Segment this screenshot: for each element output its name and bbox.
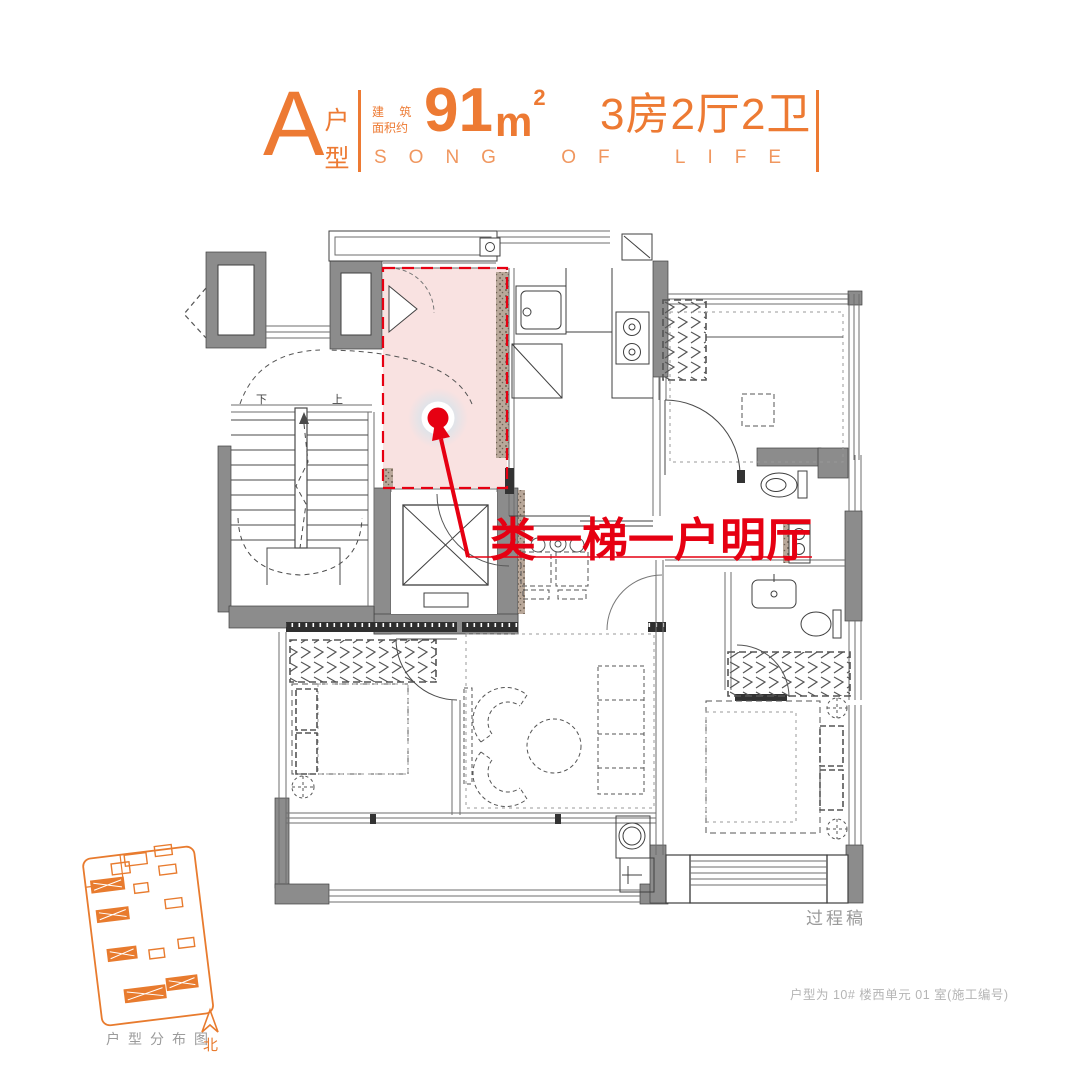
living-room: [464, 634, 654, 808]
site-buildings-outline: [110, 843, 196, 962]
stove-burners: [624, 319, 641, 361]
top-fixtures: [480, 234, 652, 260]
site-buildings-highlighted: [90, 869, 200, 1006]
site-map: 户型分布图 北: [82, 842, 218, 1054]
windows: [231, 231, 861, 902]
watermark-label: 过程稿: [806, 909, 866, 928]
bedroom-southwest: [290, 639, 457, 798]
footnote-label: 户型为 10# 楼西单元 01 室(施工编号): [790, 987, 1008, 1002]
floor-plan: 下 上: [0, 0, 1079, 1090]
page: { "colors": { "accent_orange": "#ED7A33"…: [0, 0, 1079, 1090]
washing-machine: [616, 816, 650, 858]
sitemap-caption: 户型分布图: [106, 1031, 216, 1047]
stairs-up-label: 上: [332, 393, 343, 406]
walls: [206, 252, 863, 904]
balcony: [370, 814, 654, 892]
wall-openings: [218, 265, 371, 335]
north-label: 北: [203, 1037, 218, 1054]
annotation-label: 类一梯一户明厅: [490, 514, 812, 566]
master-bedroom: [607, 575, 850, 839]
louver-door: [184, 288, 206, 338]
bay-window: [666, 855, 848, 903]
elevator: [391, 492, 497, 614]
stairs-down-label: 下: [256, 394, 267, 406]
